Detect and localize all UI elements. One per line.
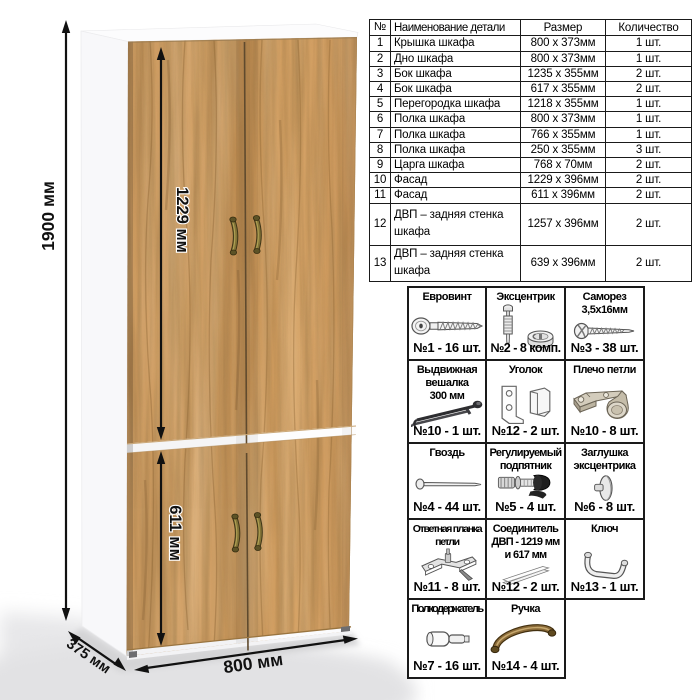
svg-text:611 мм: 611 мм (166, 505, 184, 561)
svg-text:1229 мм: 1229 мм (173, 187, 191, 253)
svg-text:1900 мм: 1900 мм (38, 181, 58, 251)
